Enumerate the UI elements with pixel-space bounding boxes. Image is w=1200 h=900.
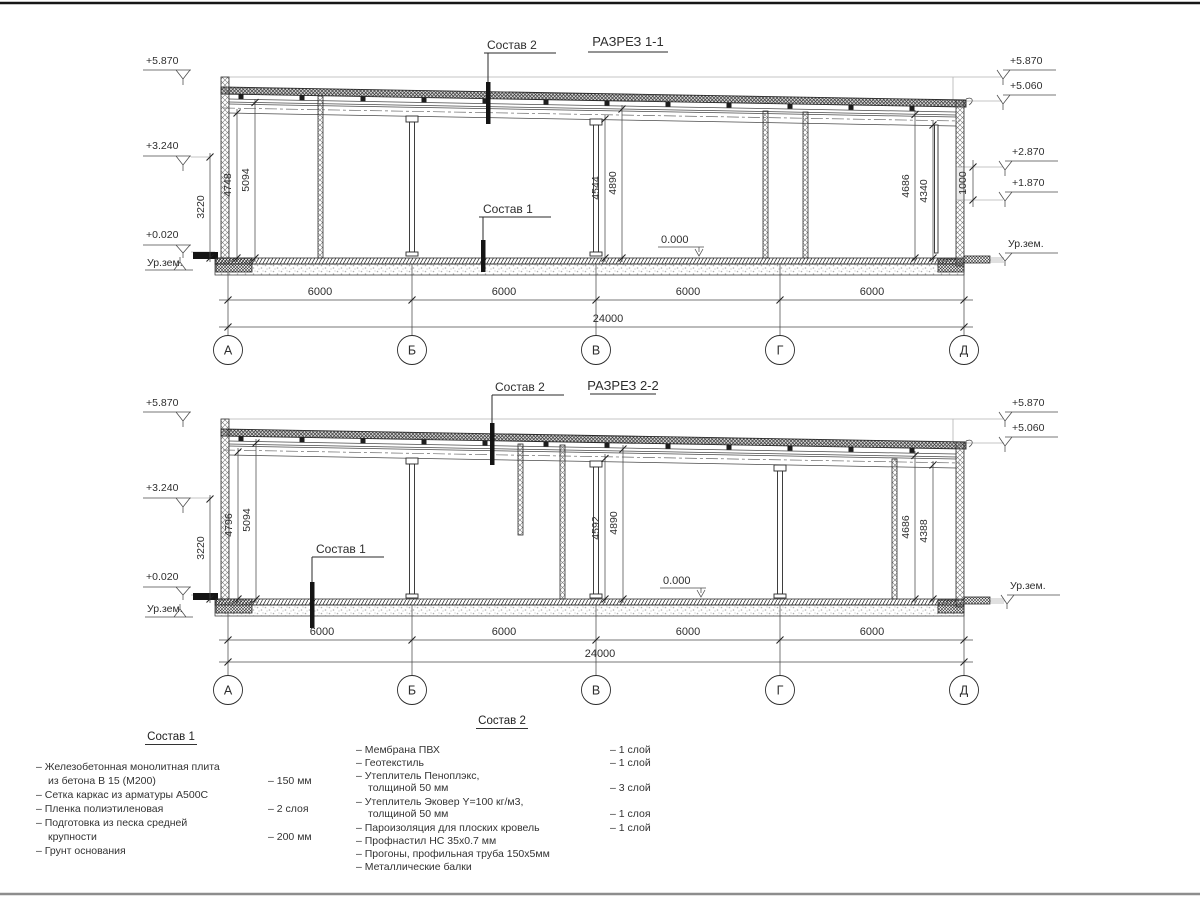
axis-label: Б (408, 684, 416, 698)
dim-3220: 3220 (195, 536, 207, 560)
spec-row: – Профнастил НС 35х0.7 мм (356, 835, 686, 848)
spec-row: – Сетка каркас из арматуры А500С (36, 789, 336, 802)
spec-row: – Железобетонная монолитная плита (36, 761, 336, 774)
zero-label: 0.000 (663, 575, 691, 587)
spec-title: Состав 1 (36, 731, 306, 745)
dim-4592: 4592 (590, 516, 602, 540)
axis-label: А (224, 684, 233, 698)
dim-4340: 4340 (918, 179, 930, 203)
section-1-1: 3220 4748 5094 4544 4890 4686 4340 1000 … (143, 34, 1058, 365)
elevation-label: +5.870 (146, 397, 179, 409)
dim-5094: 5094 (240, 168, 252, 192)
ground-level-label: Ур.зем. (1010, 580, 1046, 592)
spec-row: – Металлические балки (356, 861, 686, 874)
spec-row: – Подготовка из песка средней (36, 817, 336, 830)
spec-row: толщиной 50 мм– 1 слоя (356, 808, 686, 821)
elevation-label: +5.060 (1010, 80, 1043, 92)
dim-6000: 6000 (860, 286, 884, 298)
elevation-label: +5.870 (146, 55, 179, 67)
dim-6000: 6000 (860, 626, 884, 638)
sostav2-label: Состав 2 (495, 380, 545, 394)
zero-mark: 0.000 (660, 575, 706, 597)
dim-24000: 24000 (593, 313, 624, 325)
axis-label: Д (960, 684, 969, 698)
elevation-label: +0.020 (146, 229, 179, 241)
axis-label: В (592, 344, 600, 358)
elevation-label: +3.240 (146, 482, 179, 494)
elevation-label: +3.240 (146, 140, 179, 152)
elevation-label: +5.870 (1012, 397, 1045, 409)
dim-24000: 24000 (585, 648, 616, 660)
dim-5094: 5094 (241, 508, 253, 532)
dim-4686: 4686 (900, 515, 912, 539)
spec-row: – Геотекстиль– 1 слой (356, 757, 686, 770)
axis-label: А (224, 344, 233, 358)
dim-4686: 4686 (900, 174, 912, 198)
vertical-dimensions: 3220 4748 5094 4544 4890 4686 4340 1000 (195, 99, 977, 262)
zero-mark: 0.000 (658, 234, 704, 256)
drawing-sheet: 3220 4748 5094 4544 4890 4686 4340 1000 … (0, 0, 1200, 900)
ground-level-label: Ур.зем. (1008, 238, 1044, 250)
sostav1-label: Состав 1 (316, 542, 366, 556)
vertical-dimensions: 3220 4796 5094 4592 4890 4686 4388 (195, 439, 937, 603)
elevation-label: +0.020 (146, 571, 179, 583)
axis-label: В (592, 684, 600, 698)
elevation-marks-left: +5.870 +3.240 +0.020 Ур.зем. (143, 397, 193, 617)
axis-label: Г (777, 684, 784, 698)
axis-label: Г (777, 344, 784, 358)
dim-4388: 4388 (918, 519, 930, 543)
spec-row: – Пароизоляция для плоских кровель– 1 сл… (356, 822, 686, 835)
dim-6000: 6000 (308, 286, 332, 298)
sostav-leaders: Состав 2 Состав 1 (479, 38, 556, 272)
dim-6000: 6000 (492, 286, 516, 298)
dim-6000: 6000 (492, 626, 516, 638)
sostav-leaders: Состав 2 Состав 1 (310, 380, 564, 628)
section-2-2: 3220 4796 5094 4592 4890 4686 4388 Соста… (143, 378, 1060, 705)
spec-row: крупности– 200 мм (36, 831, 336, 844)
zero-label: 0.000 (661, 234, 689, 246)
spec-row: – Прогоны, профильная труба 150х5мм (356, 848, 686, 861)
spec-row: – Грунт основания (36, 845, 336, 858)
spec-row: из бетона В 15 (М200)– 150 мм (36, 775, 336, 788)
sostav1-label: Состав 1 (483, 202, 533, 216)
dim-4748: 4748 (222, 173, 234, 197)
elevation-marks-right: +5.870 +5.060 +2.870 +1.870 Ур.зем. (997, 55, 1058, 266)
dim-3220: 3220 (195, 195, 207, 219)
dim-1000: 1000 (957, 171, 969, 195)
dim-6000: 6000 (310, 626, 334, 638)
elevation-marks-left: +5.870 +3.240 +0.020 Ур.зем. (143, 55, 193, 270)
axis-label: Д (960, 344, 969, 358)
dim-6000: 6000 (676, 626, 700, 638)
section-title: РАЗРЕЗ 2-2 (587, 378, 659, 393)
dim-4890: 4890 (607, 171, 619, 195)
spec-title: Состав 2 (356, 715, 648, 729)
dim-4796: 4796 (223, 513, 235, 537)
spec-row: – Пленка полиэтиленовая– 2 слоя (36, 803, 336, 816)
sostav2-label: Состав 2 (487, 38, 537, 52)
axis-label: Б (408, 344, 416, 358)
elevation-label: +5.060 (1012, 422, 1045, 434)
spec-row: толщиной 50 мм– 3 слой (356, 782, 686, 795)
section-title: РАЗРЕЗ 1-1 (592, 34, 664, 49)
axis-bubbles: А Б В Г Д (214, 336, 979, 365)
axis-bubbles: А Б В Г Д (214, 676, 979, 705)
elevation-marks-right: +5.870 +5.060 Ур.зем. (999, 397, 1060, 609)
dim-4544: 4544 (590, 176, 602, 200)
ground-level-label: Ур.зем. (147, 257, 183, 269)
dim-6000: 6000 (676, 286, 700, 298)
elevation-label: +2.870 (1012, 146, 1045, 158)
spec-row: – Мембрана ПВХ– 1 слой (356, 744, 686, 757)
dim-4890: 4890 (608, 511, 620, 535)
elevation-label: +5.870 (1010, 55, 1043, 67)
elevation-label: +1.870 (1012, 177, 1045, 189)
